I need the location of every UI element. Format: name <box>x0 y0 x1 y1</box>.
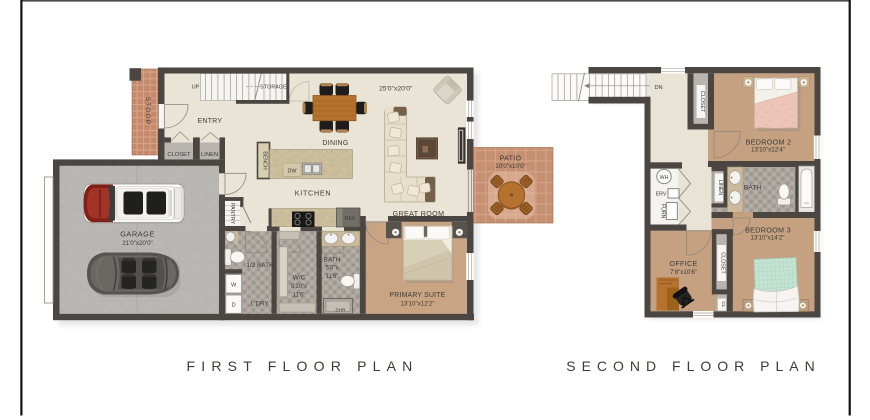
svg-text:13'10"x12'2": 13'10"x12'2" <box>401 300 435 307</box>
svg-text:13'10"x12'4": 13'10"x12'4" <box>751 147 785 154</box>
svg-text:LINEN: LINEN <box>717 180 723 196</box>
svg-text:FIRST FLOOR PLAN: FIRST FLOOR PLAN <box>187 358 419 374</box>
svg-text:BEDROOM 2: BEDROOM 2 <box>746 138 792 147</box>
svg-text:CLOSET: CLOSET <box>167 152 191 158</box>
svg-text:OFFICE: OFFICE <box>669 259 697 268</box>
svg-text:DN: DN <box>654 85 662 91</box>
svg-text:STORAGE: STORAGE <box>260 85 287 91</box>
svg-text:PATIO: PATIO <box>500 156 522 163</box>
svg-text:STOOP: STOOP <box>144 97 151 126</box>
svg-text:LINEN: LINEN <box>201 152 218 158</box>
svg-text:13'10"x14'2": 13'10"x14'2" <box>751 235 785 242</box>
svg-text:W: W <box>231 282 237 288</box>
svg-text:GARAGE: GARAGE <box>120 230 155 239</box>
svg-text:CLOSET: CLOSET <box>699 91 705 113</box>
svg-text:PRIMARY SUITE: PRIMARY SUITE <box>390 292 446 299</box>
svg-text:CLOSET: CLOSET <box>720 252 726 274</box>
svg-text:21'0"x20'0": 21'0"x20'0" <box>122 240 153 247</box>
svg-text:SHR: SHR <box>335 308 346 314</box>
svg-text:11'6": 11'6" <box>326 274 339 280</box>
svg-text:10'0"x10'0": 10'0"x10'0" <box>495 163 526 170</box>
svg-text:25'0"x20'0": 25'0"x20'0" <box>379 85 413 92</box>
svg-text:DW: DW <box>288 169 298 175</box>
svg-text:L'DRY: L'DRY <box>251 301 269 308</box>
svg-text:GREAT ROOM: GREAT ROOM <box>393 210 445 218</box>
svg-text:FURN: FURN <box>660 204 666 219</box>
svg-text:11'6": 11'6" <box>293 293 306 299</box>
svg-text:ERV: ERV <box>656 191 667 197</box>
svg-text:REF: REF <box>345 216 356 222</box>
svg-text:KITCHEN: KITCHEN <box>295 189 331 198</box>
svg-text:W/C: W/C <box>293 275 306 282</box>
svg-text:ENTRY: ENTRY <box>198 118 223 125</box>
svg-text:PANTRY: PANTRY <box>229 203 235 225</box>
svg-text:7'8"x10'6": 7'8"x10'6" <box>670 269 697 276</box>
svg-text:5'10"x: 5'10"x <box>291 284 307 290</box>
svg-text:BATH: BATH <box>744 185 762 192</box>
svg-text:DINING: DINING <box>322 140 348 147</box>
svg-text:UP: UP <box>192 85 200 91</box>
svg-text:SECOND FLOOR PLAN: SECOND FLOOR PLAN <box>566 358 820 374</box>
svg-text:BATH: BATH <box>323 256 340 263</box>
svg-text:D: D <box>232 303 236 309</box>
svg-text:BENCH: BENCH <box>262 151 268 169</box>
svg-text:1/2 BATH: 1/2 BATH <box>246 262 274 269</box>
svg-text:WH: WH <box>660 175 669 181</box>
svg-text:BEDROOM 3: BEDROOM 3 <box>745 225 791 234</box>
svg-text:CL: CL <box>720 301 726 307</box>
svg-text:5'0"x: 5'0"x <box>326 266 339 272</box>
